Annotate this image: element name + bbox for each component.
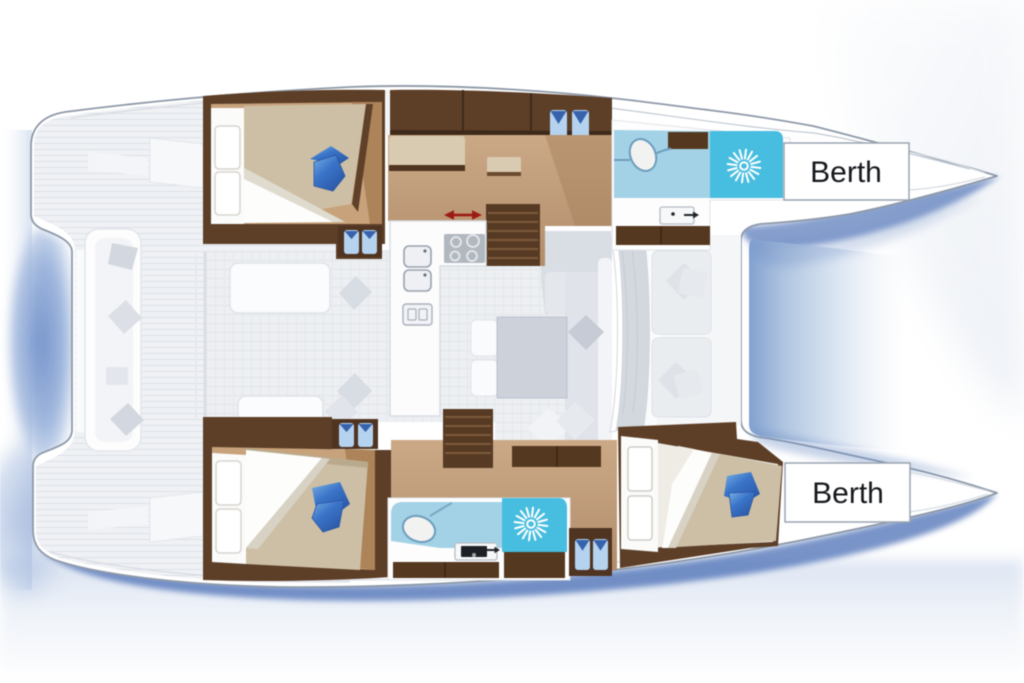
svg-text:Berth: Berth — [810, 156, 882, 189]
svg-text:Berth: Berth — [812, 477, 884, 510]
